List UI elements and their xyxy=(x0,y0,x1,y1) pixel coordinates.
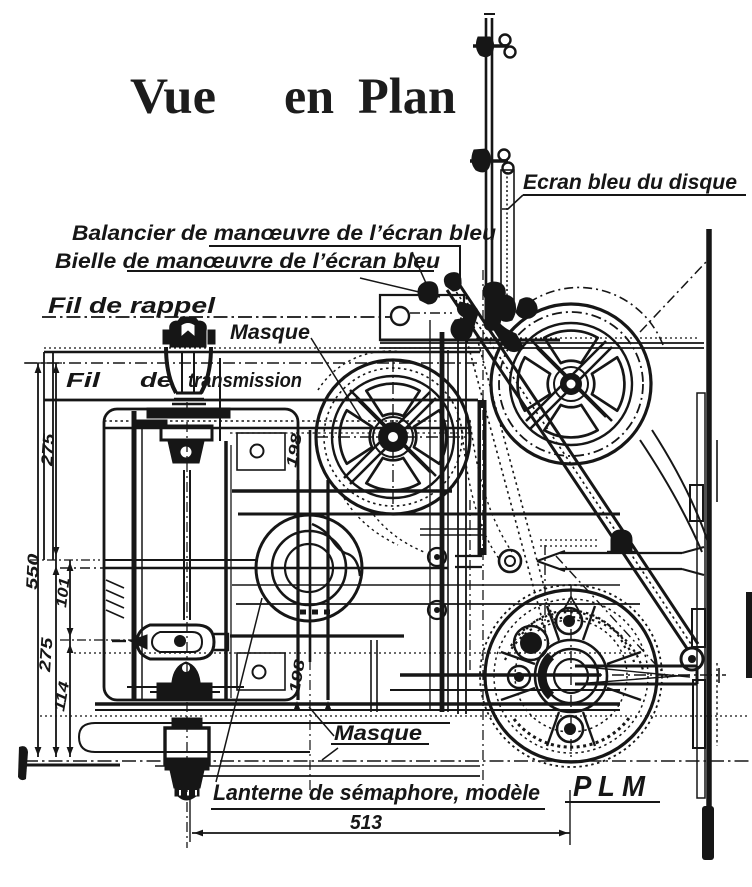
svg-text:Masque: Masque xyxy=(230,321,310,344)
svg-text:Balancier de manœuvre de l’écr: Balancier de manœuvre de l’écran bleu xyxy=(72,222,496,245)
svg-text:P L M: P L M xyxy=(573,771,646,803)
svg-text:Ecran bleu du disque: Ecran bleu du disque xyxy=(523,171,737,194)
svg-text:en: en xyxy=(284,69,334,125)
svg-text:275: 275 xyxy=(37,636,57,674)
svg-text:275: 275 xyxy=(39,432,58,468)
svg-text:101: 101 xyxy=(53,577,74,609)
svg-text:Fil de rappel: Fil de rappel xyxy=(48,293,216,318)
svg-text:Bielle de manœuvre de l’écran: Bielle de manœuvre de l’écran bleu xyxy=(55,250,440,273)
svg-text:Lanterne de sémaphore, modèle: Lanterne de sémaphore, modèle xyxy=(213,780,540,805)
svg-text:Masque: Masque xyxy=(334,722,422,745)
svg-text:Plan: Plan xyxy=(358,69,456,125)
svg-text:Vue: Vue xyxy=(130,69,216,125)
svg-text:Fil: Fil xyxy=(66,370,101,392)
svg-text:513: 513 xyxy=(350,812,382,834)
svg-text:550: 550 xyxy=(24,553,43,590)
